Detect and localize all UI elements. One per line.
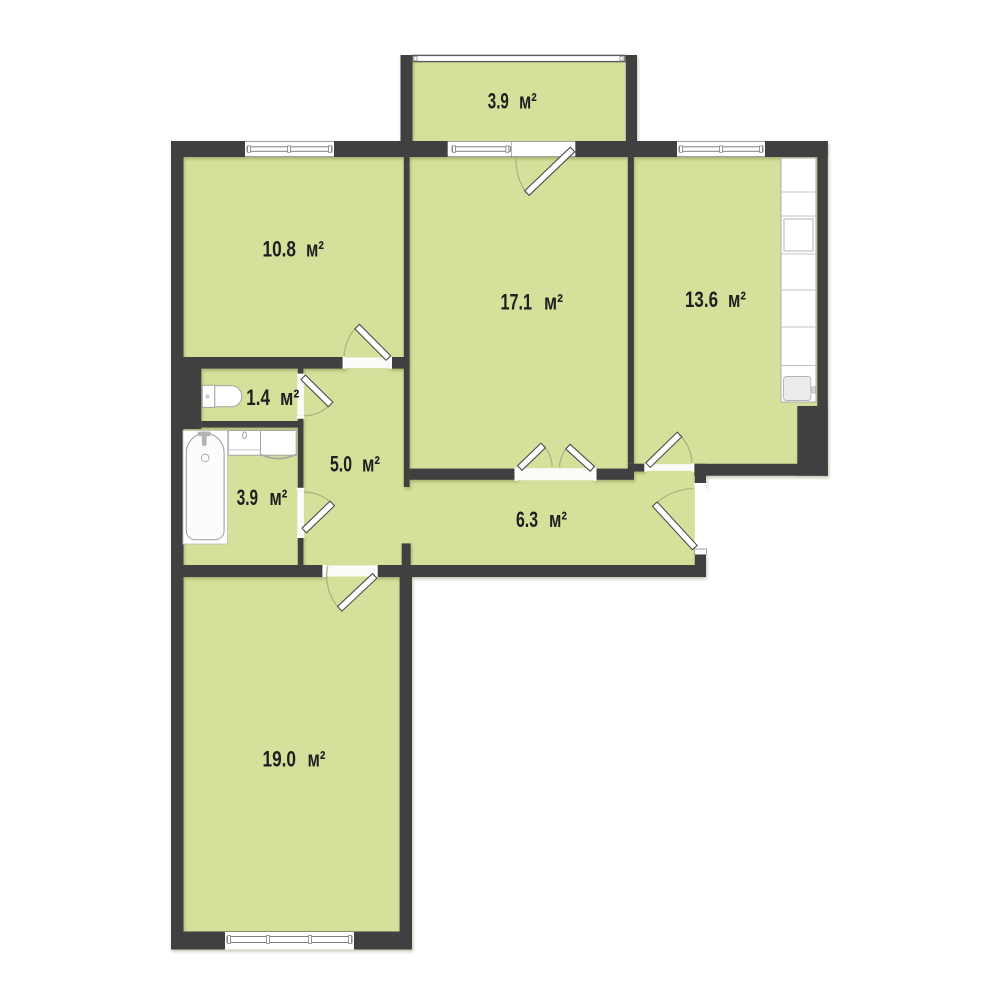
svg-text:3.9: 3.9 [488, 89, 509, 114]
svg-text:1.4: 1.4 [246, 385, 270, 410]
svg-text:м²: м² [519, 89, 537, 114]
svg-text:5.0: 5.0 [330, 452, 352, 477]
svg-text:м²: м² [549, 507, 567, 532]
svg-text:19.0: 19.0 [263, 747, 297, 772]
svg-text:м²: м² [306, 237, 324, 262]
svg-text:17.1: 17.1 [501, 290, 533, 315]
svg-text:м²: м² [362, 452, 380, 477]
svg-text:3.9: 3.9 [237, 485, 258, 510]
svg-text:м²: м² [269, 485, 287, 510]
svg-text:м²: м² [728, 287, 746, 312]
svg-text:6.3: 6.3 [516, 507, 538, 532]
svg-text:м²: м² [544, 290, 563, 315]
svg-text:13.6: 13.6 [685, 287, 718, 312]
svg-text:м²: м² [280, 385, 299, 410]
svg-text:м²: м² [308, 747, 326, 772]
svg-text:10.8: 10.8 [263, 237, 297, 262]
